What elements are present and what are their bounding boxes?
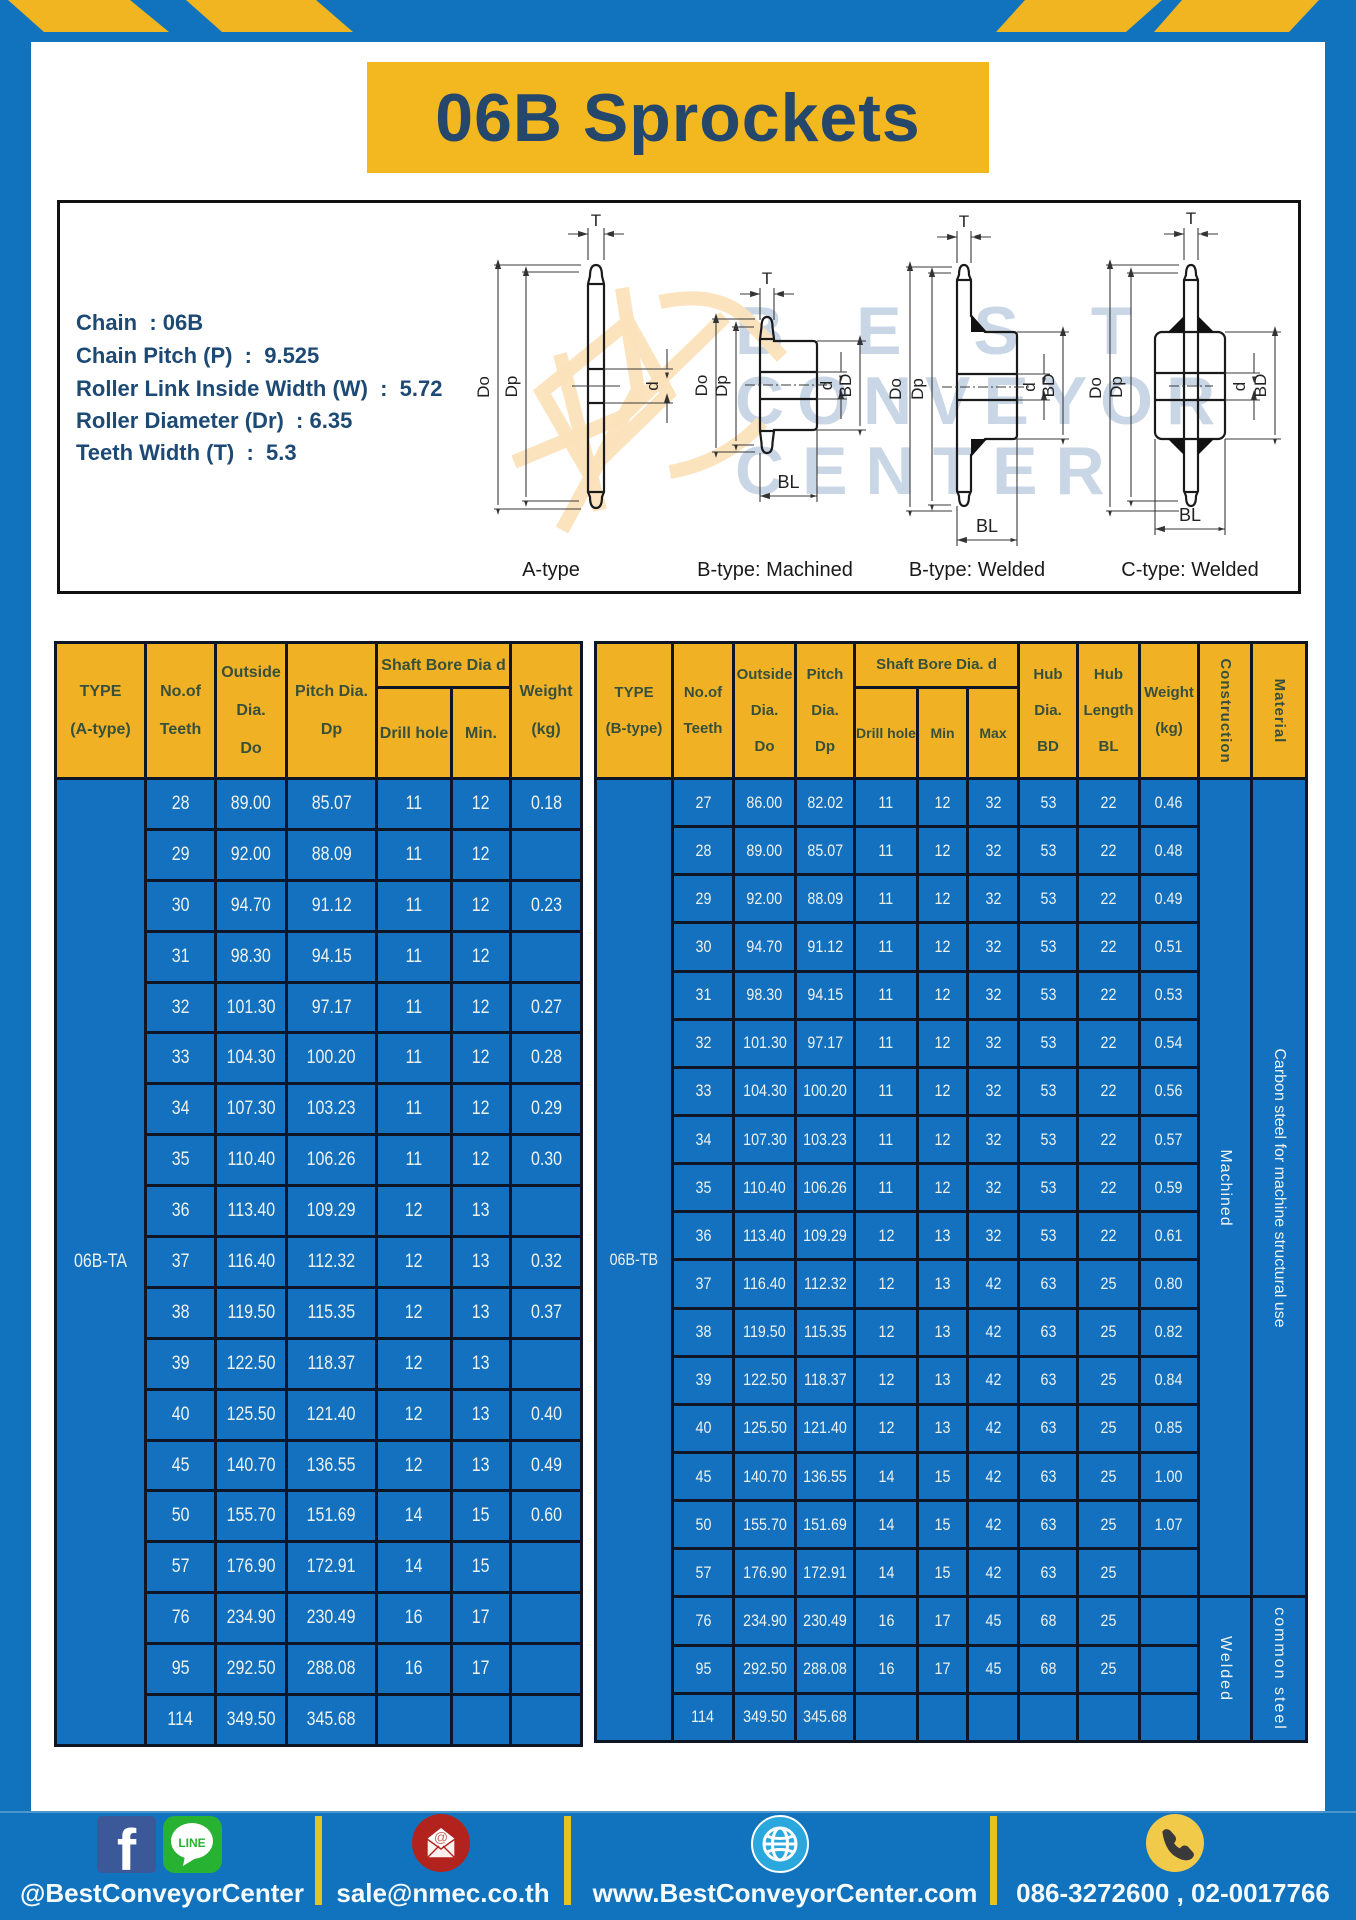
- svg-text:BL: BL: [976, 516, 998, 536]
- svg-text:Dp: Dp: [1107, 376, 1126, 398]
- svg-text:d: d: [1230, 382, 1249, 391]
- svg-text:d: d: [1020, 382, 1039, 391]
- svg-text:BL: BL: [777, 472, 799, 492]
- svg-text:BL: BL: [1179, 505, 1201, 525]
- svg-text:d: d: [643, 381, 662, 390]
- svg-text:BD: BD: [1039, 374, 1058, 398]
- svg-text:Dp: Dp: [908, 378, 927, 400]
- svg-text:@: @: [434, 1829, 448, 1845]
- svg-text:T: T: [1186, 209, 1196, 228]
- svg-text:LINE: LINE: [178, 1836, 205, 1850]
- svg-text:BD: BD: [836, 374, 855, 398]
- svg-text:T: T: [591, 211, 601, 230]
- svg-text:Dp: Dp: [502, 376, 521, 398]
- svg-text:T: T: [762, 269, 772, 288]
- svg-text:d: d: [817, 381, 836, 390]
- svg-text:Do: Do: [474, 376, 493, 398]
- svg-text:T: T: [959, 212, 969, 231]
- svg-text:Dp: Dp: [712, 375, 731, 397]
- svg-text:BD: BD: [1251, 374, 1270, 398]
- svg-text:Do: Do: [692, 375, 711, 397]
- svg-text:Do: Do: [1086, 377, 1105, 399]
- svg-text:Do: Do: [886, 378, 905, 400]
